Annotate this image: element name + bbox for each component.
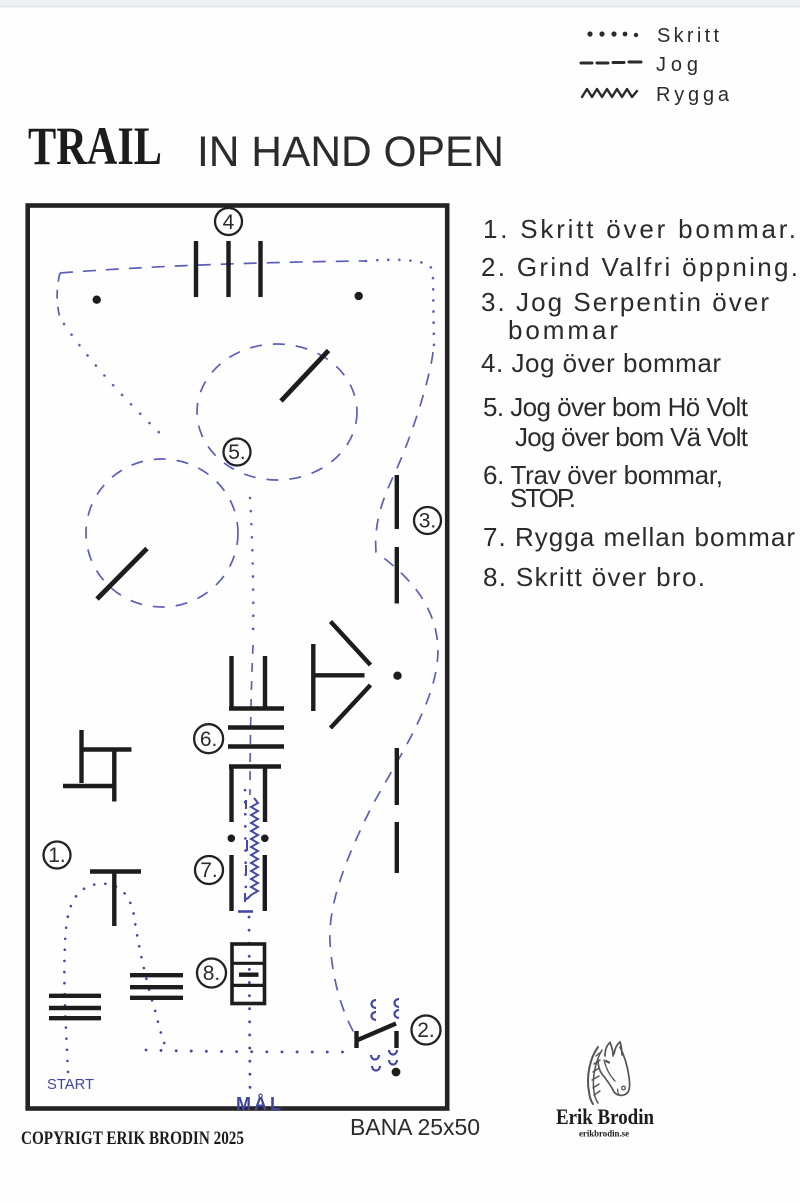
svg-text:2.: 2. <box>417 1019 435 1042</box>
svg-text:Erik Brodin: Erik Brodin <box>556 1104 654 1129</box>
svg-text:8.: 8. <box>203 962 221 985</box>
svg-text:3. Jog Serpentin över: 3. Jog Serpentin över <box>481 287 769 317</box>
svg-text:STOP.: STOP. <box>510 483 576 513</box>
svg-text:1. Skritt över bommar.: 1. Skritt över bommar. <box>483 214 796 244</box>
svg-text:4: 4 <box>223 211 235 234</box>
svg-text:Skritt: Skritt <box>657 25 719 47</box>
svg-text:TRAIL: TRAIL <box>28 116 162 176</box>
svg-text:7.: 7. <box>200 859 218 882</box>
svg-text:Rygga: Rygga <box>656 84 730 106</box>
svg-text:COPYRIGT ERIK BRODIN 2025: COPYRIGT ERIK BRODIN 2025 <box>21 1129 244 1149</box>
svg-text:START: START <box>47 1076 94 1093</box>
svg-text:4. Jog över bommar: 4. Jog över bommar <box>481 348 721 378</box>
svg-text:6.: 6. <box>200 728 218 751</box>
svg-text:5.: 5. <box>228 441 246 464</box>
svg-text:MÅL: MÅL <box>236 1094 281 1114</box>
svg-text:7. Rygga mellan bommar: 7. Rygga mellan bommar <box>483 522 795 552</box>
svg-text:8. Skritt över bro.: 8. Skritt över bro. <box>483 562 705 592</box>
svg-text:5. Jog över bom Hö Volt: 5. Jog över bom Hö Volt <box>483 392 749 422</box>
svg-text:erikbrodin.se: erikbrodin.se <box>579 1130 629 1140</box>
svg-text:2. Grind Valfri öppning.: 2. Grind Valfri öppning. <box>481 252 798 282</box>
svg-text:IN HAND OPEN: IN HAND OPEN <box>197 128 504 176</box>
svg-text:bommar: bommar <box>508 315 618 345</box>
svg-text:3.: 3. <box>419 510 437 533</box>
svg-text:1.: 1. <box>48 844 66 867</box>
svg-text:BANA 25x50: BANA 25x50 <box>350 1114 480 1140</box>
svg-text:Jog: Jog <box>656 54 698 76</box>
svg-text:Jog över bom Vä Volt: Jog över bom Vä Volt <box>515 422 749 452</box>
